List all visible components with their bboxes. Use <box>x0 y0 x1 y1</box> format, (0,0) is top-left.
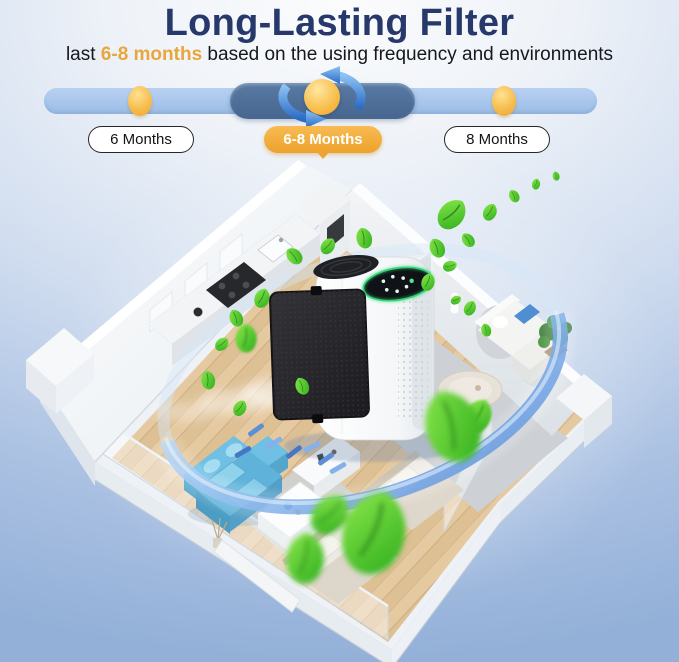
air-purifier <box>270 251 460 462</box>
coffee-table <box>258 482 332 552</box>
living-room-rug <box>238 458 372 566</box>
leaf-icon <box>292 375 311 397</box>
lounge <box>438 292 572 409</box>
bedroom-right <box>364 450 464 530</box>
timeline-label-6-8-months: 6-8 Months <box>264 126 382 153</box>
blue-sofa <box>184 436 288 534</box>
timeline-label-8-months: 8 Months <box>444 126 550 153</box>
oven <box>327 214 344 250</box>
floor-slab <box>95 190 600 662</box>
purifier-body <box>316 257 434 440</box>
wall-decor-circles <box>476 305 558 387</box>
filter-fragments <box>234 423 347 475</box>
white-bottle <box>450 292 459 314</box>
filter-life-timeline: 6 Months 6-8 Months 8 Months <box>0 0 679 170</box>
light-halo <box>55 140 665 610</box>
living-room <box>184 436 360 552</box>
glass-door <box>408 250 432 348</box>
dry-plant <box>212 518 227 548</box>
balcony-glass-railing <box>100 418 388 640</box>
bedroom-bottom <box>214 514 398 612</box>
timeline-label-6-months: 6 Months <box>88 126 194 153</box>
air-outlet-perforations <box>398 300 428 418</box>
green-leaves <box>200 171 561 586</box>
airflow-ring-back <box>131 202 557 441</box>
timeline-dot-6-months <box>128 86 152 116</box>
kitchen <box>148 182 350 366</box>
filter-clip-bottom <box>312 414 323 423</box>
long-lasting-filter-infographic: Long-Lasting Filter last 6-8 months base… <box>0 0 679 662</box>
wood-floor <box>112 202 590 642</box>
kettle <box>194 308 203 317</box>
blue-pillow <box>514 304 540 324</box>
bedroom-glass-wall <box>444 414 492 532</box>
filter-clip-top <box>311 286 322 295</box>
kitchen-sink <box>258 235 293 262</box>
exterior-walls <box>26 160 612 486</box>
purifier-display <box>361 263 435 306</box>
filter-panel <box>270 284 370 424</box>
active-label-pointer <box>316 151 330 159</box>
kitchen-cooktop <box>206 262 266 308</box>
round-rug <box>438 371 502 409</box>
airflow-ring-front <box>166 311 594 554</box>
air-mist <box>154 378 330 422</box>
lounge-gray-floor <box>330 316 568 512</box>
potted-plant <box>538 315 572 360</box>
white-sofa <box>474 294 568 384</box>
timeline-dot-8-months <box>492 86 516 116</box>
display-touch-icons <box>381 272 416 295</box>
motion-blur-leaves <box>284 383 490 586</box>
purifier-top-grille <box>312 251 381 283</box>
purifier-shadow <box>284 430 460 462</box>
